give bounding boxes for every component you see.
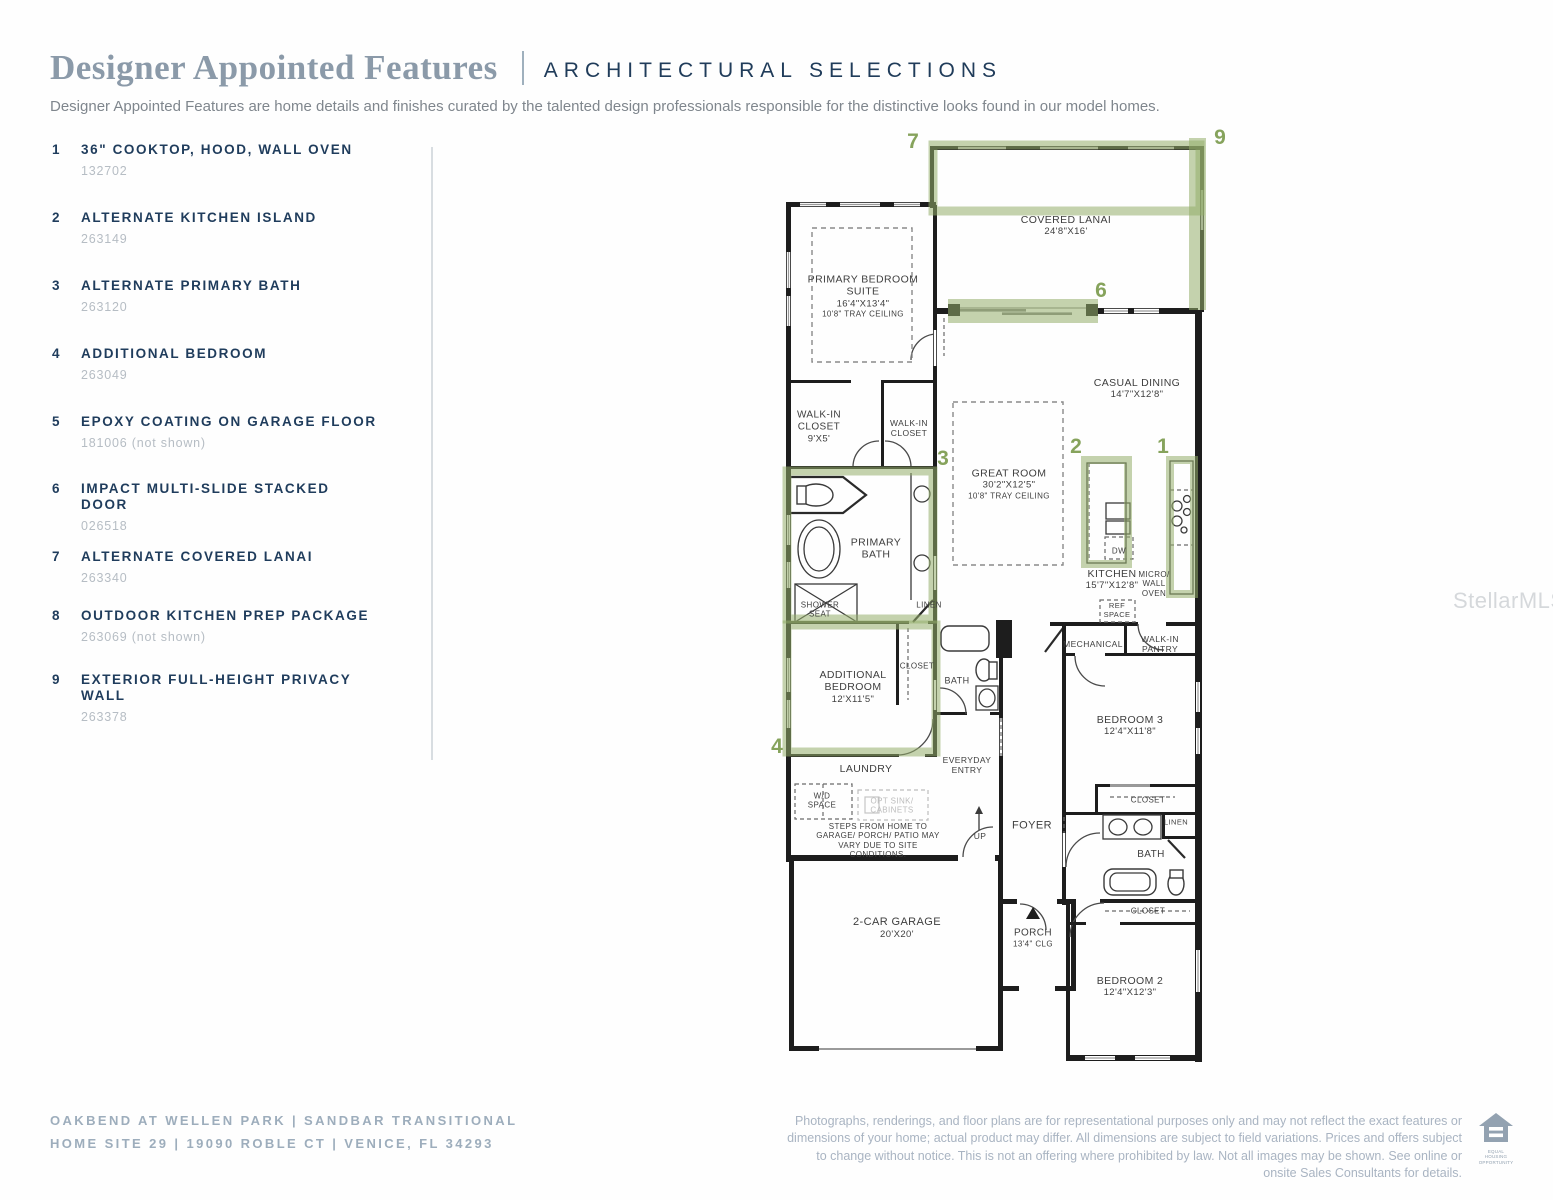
feature-item-3: 3ALTERNATE PRIMARY BATH263120 [52,278,422,314]
feature-marker-7: 7 [907,130,919,154]
room-label-porch: PORCH13'4" CLG [1013,927,1053,948]
room-label-opt-sink: OPT SINK/ CABINETS [859,797,925,816]
room-label-walkin-pantry: WALK-IN PANTRY [1133,634,1187,654]
room-label-bedroom-2: BEDROOM 212'4"X12'3" [1080,975,1180,999]
footer-address: OAKBEND AT WELLEN PARK | SANDBAR TRANSIT… [50,1110,517,1156]
room-label-shower-seat: SHOWER SEAT [794,601,846,620]
room-label-everyday-entry: EVERYDAY ENTRY [936,755,998,775]
room-label-garage: 2-CAR GARAGE20'X20' [837,916,957,940]
feature-item-2: 2ALTERNATE KITCHEN ISLAND263149 [52,210,422,246]
page-subtitle: ARCHITECTURAL SELECTIONS [544,53,1002,83]
room-label-laundry: LAUNDRY [840,763,893,775]
room-label-bedroom-3: BEDROOM 312'4"X11'8" [1080,714,1180,738]
equal-housing-logo: EQUAL HOUSING OPPORTUNITY [1477,1112,1515,1165]
room-label-bath-1: BATH [945,676,970,687]
room-label-wd-space: W/D SPACE [803,792,841,811]
room-label-up: UP [974,831,987,841]
footer-community-line: OAKBEND AT WELLEN PARK | SANDBAR TRANSIT… [50,1110,517,1133]
feature-item-7: 7ALTERNATE COVERED LANAI263340 [52,549,422,585]
feature-item-1: 136" COOKTOP, HOOD, WALL OVEN132702 [52,142,422,178]
equal-housing-text: EQUAL HOUSING OPPORTUNITY [1477,1149,1515,1165]
stellar-mls-watermark: StellarMLS [1453,588,1553,614]
room-label-dw: DW [1112,546,1126,555]
room-label-ref-space: REF SPACE [1101,602,1133,620]
footer-disclaimer: Photographs, renderings, and floor plans… [782,1113,1462,1182]
equal-housing-house-icon [1478,1112,1514,1144]
feature-item-4: 4ADDITIONAL BEDROOM263049 [52,346,422,382]
feature-item-5: 5EPOXY COATING ON GARAGE FLOOR181006 (no… [52,414,422,450]
room-label-casual-dining: CASUAL DINING14'7"X12'8" [1093,377,1181,401]
feature-marker-4: 4 [771,735,783,759]
room-label-closet-b: CLOSET [1131,795,1165,804]
room-label-closet-a: CLOSET [900,661,934,670]
feature-marker-2: 2 [1070,435,1082,459]
feature-item-6: 6IMPACT MULTI-SLIDE STACKED DOOR026518 [52,481,422,533]
room-label-micro-wall-oven: MICRO/ WALL OVEN [1133,570,1175,598]
room-label-foyer: FOYER [1012,820,1052,833]
room-label-mechanical: MECHANICAL [1063,639,1123,649]
room-label-steps-note: STEPS FROM HOME TO GARAGE/ PORCH/ PATIO … [810,822,946,860]
room-label-covered-lanai: COVERED LANAI24'8"X16' [1021,214,1111,238]
room-label-primary-bath: PRIMARY BATH [841,537,911,562]
page: Designer Appointed Features ARCHITECTURA… [0,0,1553,1200]
room-label-linen-1: LINEN [916,600,942,609]
room-label-linen-2: LINEN [1164,819,1188,828]
feature-marker-6: 6 [1095,279,1107,303]
page-title: Designer Appointed Features [50,48,498,88]
room-label-great-room: GREAT ROOM30'2"X12'5"10'8" TRAY CEILING [943,467,1075,500]
room-label-walkin-closet-2: WALK-IN CLOSET [884,418,934,438]
room-label-additional-bedroom: ADDITIONAL BEDROOM12'X11'5" [809,669,897,705]
room-label-walkin-closet-1: WALK-IN CLOSET9'X5' [782,410,856,445]
title-divider [522,51,524,85]
feature-marker-9: 9 [1214,126,1226,150]
page-description: Designer Appointed Features are home det… [50,98,1250,115]
footer-homesite-line: HOME SITE 29 | 19090 ROBLE CT | VENICE, … [50,1133,517,1156]
header: Designer Appointed Features ARCHITECTURA… [50,48,1250,115]
feature-item-8: 8OUTDOOR KITCHEN PREP PACKAGE263069 (not… [52,608,422,644]
feature-marker-1: 1 [1157,435,1169,459]
room-label-bath-2: BATH [1137,849,1165,861]
room-label-closet-c: CLOSET [1131,906,1165,915]
list-divider-rule [431,147,433,760]
room-label-primary-suite: PRIMARY BEDROOM SUITE16'4"X13'4"10'8" TR… [807,273,919,318]
feature-item-9: 9EXTERIOR FULL-HEIGHT PRIVACY WALL263378 [52,672,422,724]
